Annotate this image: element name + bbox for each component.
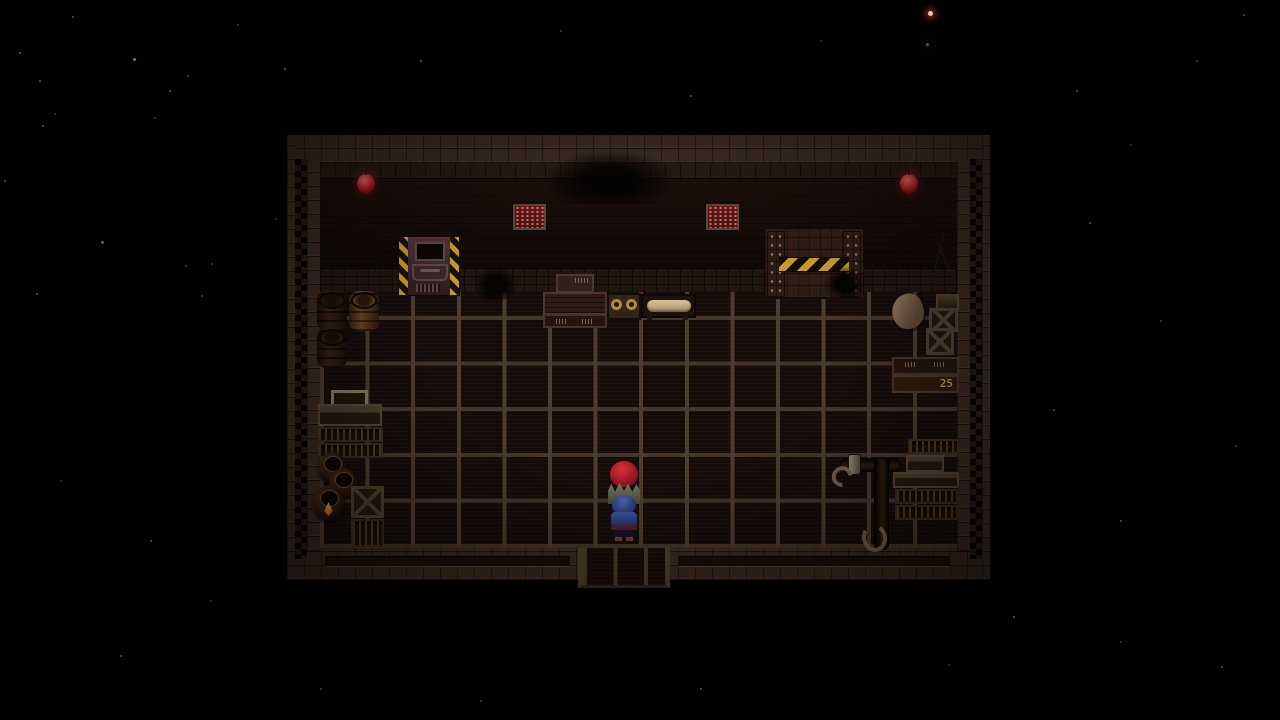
wall-drawers xyxy=(543,314,607,328)
background-star xyxy=(120,655,122,657)
background-star xyxy=(101,241,104,244)
metal-locker-grill xyxy=(416,284,440,292)
background-star xyxy=(169,90,171,92)
metal-locker-drawer xyxy=(412,264,448,281)
bench-with-body-body xyxy=(647,300,691,312)
player-character-shoes xyxy=(615,537,633,541)
floor-shadow-left xyxy=(474,266,518,300)
background-star xyxy=(154,117,156,119)
background-star xyxy=(928,11,933,16)
crate-x-left xyxy=(351,486,384,518)
background-star xyxy=(54,113,56,115)
checker-trim-right xyxy=(970,159,982,559)
barrel-brown xyxy=(349,291,379,331)
npc-redhead-hair xyxy=(610,461,638,487)
bottle-rack-1 xyxy=(317,427,383,442)
wall-cabinet-top xyxy=(556,274,594,293)
background-star xyxy=(1221,666,1223,668)
bottom-wall-groove-right xyxy=(678,556,950,567)
background-star xyxy=(210,600,212,602)
background-star xyxy=(1053,409,1055,411)
supply-shelf xyxy=(892,357,959,375)
warehouse-room: 25 xyxy=(287,135,990,580)
barrel-dark-2 xyxy=(317,328,347,368)
ceiling-lamp-right xyxy=(900,174,918,193)
rope-table xyxy=(607,293,641,320)
clay-pot-flammable xyxy=(313,485,344,521)
background-star xyxy=(1196,60,1198,62)
ceiling-lamp-left xyxy=(357,174,375,193)
desk-small xyxy=(906,455,944,472)
background-star xyxy=(420,60,422,62)
bottom-wall-groove-left xyxy=(325,556,570,567)
bottle-rack-4 xyxy=(908,439,959,454)
metal-locker xyxy=(398,236,460,296)
background-star xyxy=(187,75,189,77)
metal-locker-window xyxy=(415,242,445,261)
background-star xyxy=(820,40,822,42)
background-star xyxy=(211,263,213,265)
bottle-rack-6 xyxy=(895,505,958,520)
background-star xyxy=(42,125,44,127)
background-star xyxy=(1013,616,1015,618)
background-star xyxy=(1130,144,1132,146)
background-star xyxy=(39,80,41,82)
background-star xyxy=(201,295,203,297)
player-character[interactable] xyxy=(605,495,642,542)
bench-with-body xyxy=(641,294,696,318)
background-star xyxy=(36,293,38,295)
background-star xyxy=(1160,320,1162,322)
checker-trim-left xyxy=(295,159,307,559)
game-viewport[interactable]: 25 xyxy=(0,0,1280,720)
wall-cabinet xyxy=(543,292,607,315)
room-border-right xyxy=(982,135,990,580)
crate-quantity-label: 25 xyxy=(940,377,953,390)
floor-shadow-right xyxy=(824,266,866,298)
side-table xyxy=(318,404,382,426)
background-star xyxy=(480,700,482,702)
inner-pillar-right xyxy=(957,159,970,551)
background-star xyxy=(1243,14,1245,16)
exit-doorway[interactable] xyxy=(578,548,670,588)
ceiling-shadow xyxy=(545,150,675,204)
barrel-dark-1 xyxy=(317,291,347,331)
background-star xyxy=(1235,445,1237,447)
background-star xyxy=(926,43,929,46)
background-star xyxy=(948,664,950,666)
background-star xyxy=(72,16,74,18)
bottle-rack-5 xyxy=(895,489,958,504)
background-star xyxy=(320,688,322,690)
background-star xyxy=(275,218,277,220)
room-border-left xyxy=(287,135,295,580)
bottle-rack-3 xyxy=(351,519,384,547)
background-star xyxy=(133,58,136,61)
desk-long xyxy=(893,472,959,488)
background-star xyxy=(284,68,286,70)
crate-x-right-2 xyxy=(926,328,954,355)
wall-vent-right xyxy=(706,204,739,230)
wall-vent-left xyxy=(513,204,546,230)
background-star xyxy=(1120,520,1122,522)
wall-branches xyxy=(922,232,956,294)
background-star xyxy=(1089,222,1091,224)
background-star xyxy=(1076,90,1078,92)
background-star xyxy=(560,30,562,32)
background-star xyxy=(150,540,152,542)
background-star xyxy=(4,180,6,182)
background-star xyxy=(185,265,187,267)
background-star xyxy=(237,24,239,26)
background-star xyxy=(1120,641,1122,643)
background-star xyxy=(19,52,21,54)
background-star xyxy=(700,688,702,690)
background-star xyxy=(690,95,692,97)
background-star xyxy=(60,480,62,482)
crate-25: 25 xyxy=(892,375,959,393)
